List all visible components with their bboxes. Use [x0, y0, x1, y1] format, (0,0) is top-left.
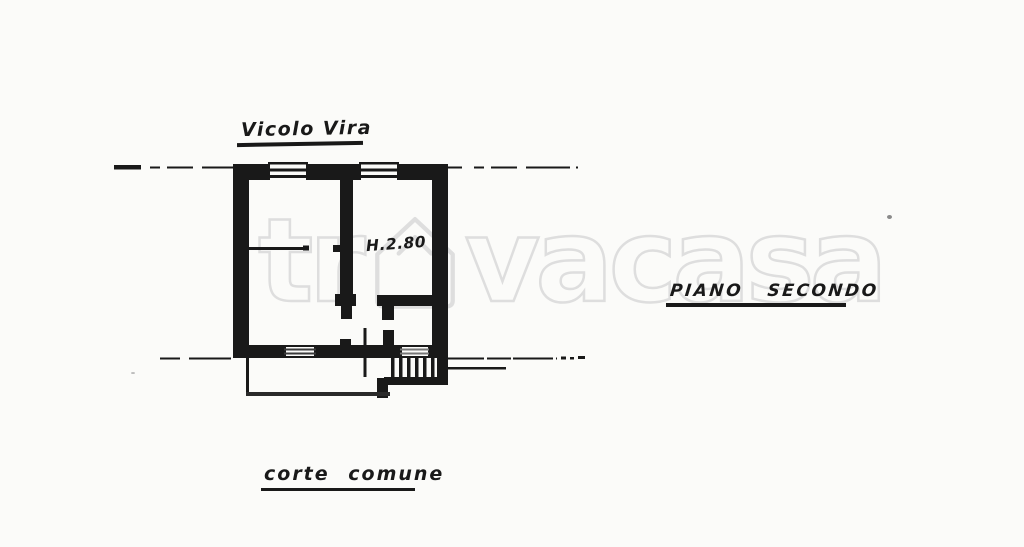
- terrace-outline: [246, 358, 390, 396]
- dividing-wall: [340, 178, 353, 306]
- street-label: Vicolo Vira: [241, 117, 372, 141]
- floor-label: PIANO SECONDO: [669, 281, 880, 301]
- cross-marker: [364, 328, 367, 377]
- stair-door-icon: [400, 347, 429, 356]
- door-jamb: [333, 245, 340, 252]
- floorplan-scan-page: tr vacasa: [0, 0, 1024, 547]
- stair-rail-line: [448, 367, 506, 370]
- floor-plan-drawing: [0, 0, 1024, 547]
- wall-left: [233, 164, 249, 358]
- window-icon: [268, 161, 308, 180]
- window-icon: [284, 347, 316, 356]
- door-jamb: [340, 339, 351, 346]
- floor-label-underline: [666, 303, 846, 307]
- window-icon: [359, 161, 399, 180]
- door-jamb: [383, 330, 394, 346]
- courtyard-label-underline: [261, 488, 415, 491]
- corridor-wall: [377, 295, 448, 306]
- wall-top: [233, 164, 448, 180]
- wall-right: [432, 164, 448, 358]
- courtyard-label: corte comune: [264, 463, 444, 485]
- ceiling-break-line: [246, 246, 309, 251]
- interior-walls: [333, 178, 448, 346]
